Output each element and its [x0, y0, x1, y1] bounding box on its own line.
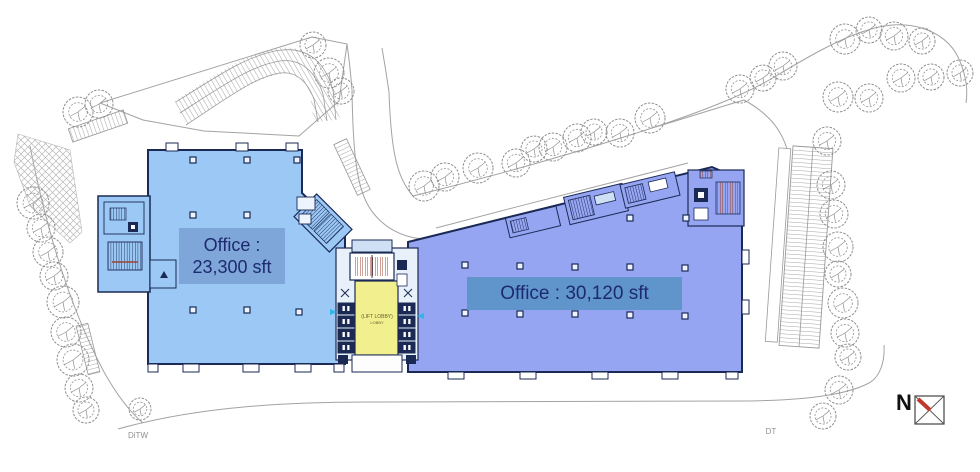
- lobby-label: (LIFT LOBBY) LOBBY: [347, 312, 407, 328]
- column-marker: [462, 310, 468, 316]
- tree-icon: [606, 119, 634, 147]
- column-marker: [244, 157, 250, 163]
- tree-icon: [73, 397, 99, 423]
- column-marker: [627, 215, 633, 221]
- tree-icon: [63, 97, 93, 127]
- tree-icon: [825, 376, 853, 404]
- column-marker: [682, 313, 688, 319]
- elevator-icon: [399, 342, 415, 353]
- tree-icon: [918, 64, 944, 90]
- column-marker: [572, 311, 578, 317]
- elevator-icon: [399, 329, 415, 340]
- column-marker: [682, 265, 688, 271]
- tree-icon: [856, 17, 882, 43]
- column-marker: [244, 212, 250, 218]
- tree-icon: [463, 153, 493, 183]
- tree-icon: [539, 133, 567, 161]
- tree-icon: [409, 171, 439, 201]
- tree-icon: [947, 60, 973, 86]
- tree-icon: [129, 398, 151, 420]
- tree-icon: [855, 84, 883, 112]
- tree-icon: [831, 319, 859, 347]
- site-plan: Office : 23,300 sft Office : 30,120 sft …: [0, 0, 980, 472]
- dropoff-island: [334, 139, 370, 196]
- tree-icon: [825, 261, 851, 287]
- tree-icon: [300, 32, 326, 58]
- column-marker: [190, 212, 196, 218]
- tree-icon: [51, 317, 81, 347]
- elevator-icon: [338, 342, 354, 353]
- column-marker: [517, 311, 523, 317]
- tree-icon: [85, 90, 113, 118]
- north-label: N: [893, 390, 915, 416]
- tree-icon: [502, 149, 530, 177]
- right-building-label-text: Office : 30,120 sft: [500, 282, 649, 306]
- left-building-label-line1: Office :: [204, 234, 261, 257]
- northeast-core: [688, 170, 744, 226]
- north-arrow: [915, 396, 944, 424]
- column-marker: [462, 262, 468, 268]
- tree-icon: [47, 286, 79, 318]
- lobby-label-line2: LOBBY: [370, 321, 383, 325]
- tree-icon: [828, 288, 858, 318]
- column-marker: [683, 215, 689, 221]
- right-building-label: Office : 30,120 sft: [467, 277, 682, 310]
- left-building-label-line2: 23,300 sft: [192, 256, 271, 279]
- elevator-icon: [338, 329, 354, 340]
- tree-icon: [65, 374, 93, 402]
- tree-icon: [521, 136, 547, 162]
- column-marker: [572, 264, 578, 270]
- column-marker: [244, 307, 250, 313]
- tree-icon: [431, 163, 459, 191]
- tree-icon: [823, 232, 853, 262]
- column-marker: [190, 307, 196, 313]
- tree-icon: [830, 24, 860, 54]
- tree-icon: [27, 214, 55, 242]
- tree-icon: [581, 119, 607, 145]
- tree-icon: [810, 403, 836, 429]
- parking-band: [180, 61, 327, 121]
- island-northwest: [68, 110, 127, 142]
- column-marker: [190, 157, 196, 163]
- column-marker: [627, 264, 633, 270]
- column-marker: [517, 263, 523, 269]
- column-marker: [627, 312, 633, 318]
- column-marker: [294, 157, 300, 163]
- left-building-label: Office : 23,300 sft: [179, 228, 285, 284]
- road-label-right: DT: [756, 426, 786, 436]
- tree-icon: [823, 82, 853, 112]
- column-marker: [296, 309, 302, 315]
- tree-icon: [887, 64, 915, 92]
- tree-icon: [835, 344, 861, 370]
- site-plan-canvas: [0, 0, 980, 472]
- tree-icon: [880, 22, 908, 50]
- landscape-crosshatch: [14, 134, 82, 243]
- road-label-left: DiTW: [118, 430, 158, 440]
